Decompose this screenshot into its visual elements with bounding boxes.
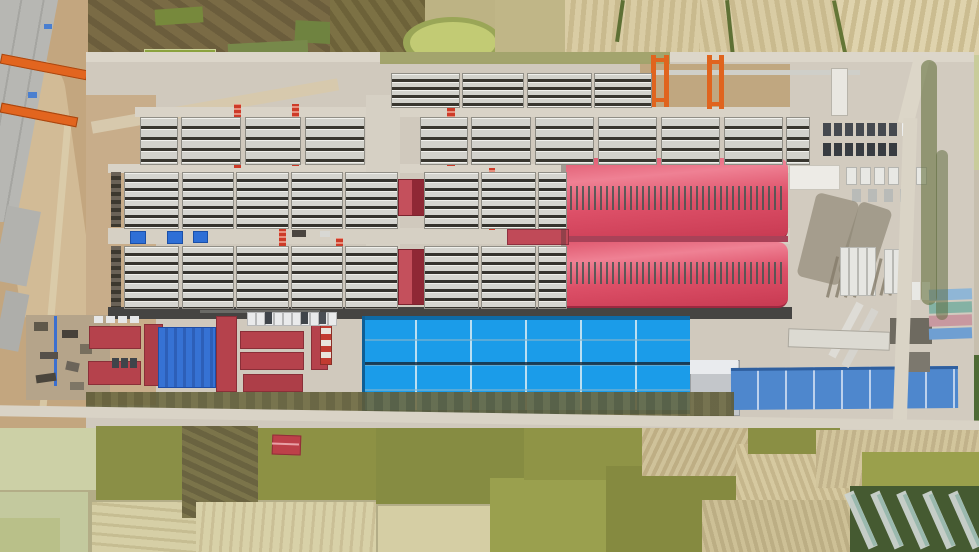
girder-row-c	[182, 172, 234, 229]
gantry-beam-tr-1b	[651, 98, 669, 102]
silo-a	[858, 247, 867, 296]
girder-row-b	[245, 117, 301, 165]
truck-white-cluster	[94, 316, 103, 323]
hall-blue-top-edge	[362, 316, 690, 320]
girder-row-a	[594, 73, 652, 108]
field-tan-2	[700, 0, 845, 58]
girder-row-c	[291, 172, 343, 229]
hall-blue-ridge	[362, 362, 690, 365]
girder-row-d	[124, 246, 179, 309]
plant-slab-white	[788, 328, 891, 351]
girder-row-d	[424, 246, 479, 309]
field-s7	[196, 502, 376, 552]
plant-building-white	[789, 165, 840, 190]
girder-row-c	[481, 172, 536, 229]
mixer-truck-grey	[884, 189, 893, 202]
parked-car-row-white	[310, 312, 319, 326]
girder-row-b	[471, 117, 531, 165]
girder-row-b	[140, 117, 178, 165]
girder-row-c	[424, 172, 479, 229]
parked-car-row-white	[247, 312, 256, 326]
silo-a	[840, 247, 849, 296]
parked-car-darker	[856, 143, 864, 156]
parked-car-dark	[867, 123, 875, 136]
girder-row-b	[420, 117, 468, 165]
field-s3	[96, 426, 182, 500]
girder-row-b	[535, 117, 594, 165]
plant-tank-white	[912, 282, 920, 300]
parked-car-dark	[878, 123, 886, 136]
parked-car-dark	[845, 123, 853, 136]
girder-row-b	[305, 117, 365, 165]
girder-row-c	[124, 172, 179, 229]
girder-row-a	[462, 73, 524, 108]
trees-right-strip	[921, 60, 937, 305]
parked-car-row-white	[292, 312, 301, 326]
mixer-truck-white	[860, 167, 871, 185]
girder-row-d	[481, 246, 536, 309]
gantry-beam-tr-1a	[651, 58, 669, 62]
shed-blue-1	[130, 231, 146, 244]
stack-dark-row-d	[111, 246, 121, 307]
shed-blue-2	[167, 231, 183, 244]
girder-row-c	[236, 172, 289, 229]
field-s4	[92, 502, 196, 552]
truck-dark-cluster	[112, 358, 119, 368]
girder-row-b	[181, 117, 241, 165]
building-red-mid-lower	[398, 249, 426, 305]
parked-car-row-white	[274, 312, 283, 326]
gantry-beam-tr-2b	[707, 102, 724, 106]
truck-dark-cluster	[121, 358, 128, 368]
parked-car-dark	[856, 123, 864, 136]
building-red-h4	[240, 352, 304, 370]
scrap-junk-7	[70, 382, 84, 390]
field-s9	[378, 506, 490, 552]
silo-b	[884, 249, 893, 294]
girder-row-a	[391, 73, 460, 108]
parked-car-dark	[834, 123, 842, 136]
parked-car-row-white	[328, 312, 337, 326]
field-s17	[702, 500, 858, 552]
trees-right-strip-2	[936, 150, 948, 320]
field-s2	[0, 518, 60, 552]
shed-roof-pink	[929, 314, 972, 326]
parked-car-dark	[823, 123, 831, 136]
parked-car-row-dark-1	[265, 312, 272, 324]
parked-car-darker	[867, 143, 875, 156]
parked-car-darker	[878, 143, 886, 156]
shed-blue-3	[193, 231, 208, 243]
truck-road-2	[320, 231, 330, 237]
girder-row-c	[538, 172, 567, 229]
truck-dark-cluster	[130, 358, 137, 368]
girder-row-a	[527, 73, 592, 108]
parked-car-darker	[889, 143, 897, 156]
girder-row-d	[538, 246, 567, 309]
truck-white-cluster	[130, 316, 139, 323]
truck-road-1	[292, 230, 306, 237]
mixer-truck-white	[874, 167, 885, 185]
building-red-h1	[89, 326, 141, 349]
girder-row-b	[786, 117, 810, 165]
silo-a	[849, 247, 858, 296]
parked-car-row-white	[283, 312, 292, 326]
parked-car-dark	[889, 123, 897, 136]
hall-red-connector	[507, 229, 569, 245]
field-s10	[490, 478, 606, 552]
girder-row-d	[236, 246, 289, 309]
field-green-patch-1	[155, 6, 204, 25]
parked-car-row-dark-3	[319, 312, 326, 324]
building-red-v2	[216, 316, 237, 392]
parked-car-darker	[823, 143, 831, 156]
gantry-beam-tr-2a	[707, 60, 724, 64]
grass-strip-row-a	[380, 52, 670, 64]
wall-building-white	[831, 68, 848, 116]
truck-white-cluster	[106, 316, 115, 323]
building-red-h5	[243, 374, 303, 392]
girder-row-c	[345, 172, 398, 229]
field-tan-3	[838, 0, 979, 60]
parked-car-row-white	[256, 312, 265, 326]
mixer-truck-grey	[868, 189, 877, 202]
building-red-mid-upper	[398, 179, 426, 216]
mixer-truck-white	[888, 167, 899, 185]
field-s0	[0, 428, 96, 490]
girder-row-d	[291, 246, 343, 309]
hall-red-2-vents	[570, 262, 784, 284]
tarp-blue-2	[44, 24, 52, 29]
hall-red-1-vents	[570, 186, 784, 210]
scrap-junk-1	[34, 322, 48, 331]
stack-dark-row-c	[111, 172, 121, 227]
parked-car-row-dark-2	[301, 312, 308, 324]
tarp-blue-1	[28, 92, 37, 98]
girder-row-d	[345, 246, 398, 309]
girder-row-d	[182, 246, 234, 309]
mixer-truck-white	[846, 167, 857, 185]
girder-row-b	[598, 117, 657, 165]
girder-row-b	[724, 117, 783, 165]
scrap-junk-2	[62, 330, 78, 338]
hall-blue-low-seams	[731, 366, 958, 410]
building-red-h3	[240, 331, 304, 349]
parked-car-darker	[845, 143, 853, 156]
truck-white-cluster	[118, 316, 127, 323]
shed-roof-blue-2	[929, 327, 972, 339]
building-blue-roof	[158, 327, 216, 388]
aerial-photo-industrial-yard	[0, 0, 979, 552]
girder-wall-line	[652, 70, 860, 75]
scrap-junk-4	[40, 352, 58, 359]
parked-car-darker	[834, 143, 842, 156]
girder-row-b	[661, 117, 720, 165]
